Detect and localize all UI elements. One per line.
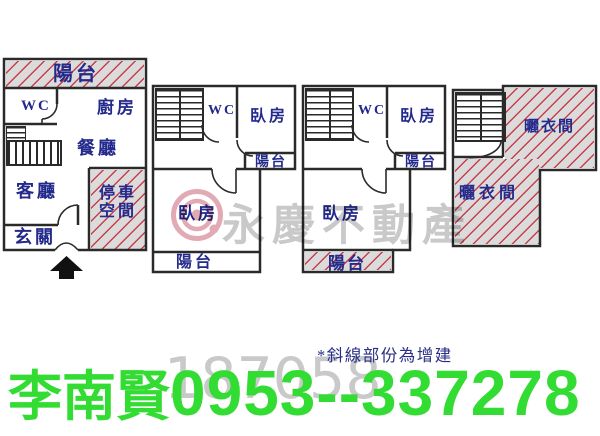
room-label-wc-p1: WC bbox=[21, 99, 51, 114]
phone-number: 0953--337278 bbox=[170, 356, 581, 430]
stairs-p4 bbox=[455, 92, 506, 142]
room-label-bedroom-p2: 臥房 bbox=[178, 205, 218, 222]
entrance-arrow-icon bbox=[50, 256, 83, 279]
stairs-p3 bbox=[305, 88, 354, 141]
floorplan-image: 陽台 WC 廚房 餐廳 客廳 停車 空間 玄關 WC 臥房 陽台 臥房 陽台 W… bbox=[0, 0, 600, 436]
room-label-balcony-side-p2: 陽台 bbox=[255, 156, 287, 170]
room-label-balcony-side-p3: 陽台 bbox=[405, 156, 437, 170]
room-label-drying-bottom-p4: 曬衣間 bbox=[459, 186, 519, 202]
room-label-wc-p2: WC bbox=[208, 104, 236, 118]
stairs-p1 bbox=[6, 140, 62, 166]
room-label-balcony-p1: 陽台 bbox=[53, 64, 99, 84]
room-label-parking-1: 停車 bbox=[99, 186, 137, 202]
room-label-kitchen-p1: 廚房 bbox=[97, 99, 137, 116]
stairs-p2 bbox=[155, 88, 204, 141]
room-label-bedroom-p3: 臥房 bbox=[322, 205, 362, 222]
room-label-wc-p3: WC bbox=[358, 104, 386, 118]
room-label-balcony-p2: 陽台 bbox=[176, 255, 214, 271]
room-label-balcony-p3: 陽台 bbox=[328, 255, 366, 272]
room-label-bedroom-top-p3: 臥房 bbox=[400, 109, 438, 125]
stairs-landing-p1 bbox=[6, 126, 26, 141]
room-label-bedroom-top-p2: 臥房 bbox=[250, 109, 288, 125]
room-label-foyer-p1: 玄關 bbox=[14, 228, 56, 246]
room-label-dining-p1: 餐廳 bbox=[77, 139, 119, 157]
room-label-parking-2: 空間 bbox=[99, 204, 137, 220]
agent-name: 李南賢 bbox=[8, 352, 170, 431]
room-label-living-p1: 客廳 bbox=[16, 182, 58, 200]
contact-line: 李南賢0953--337278 bbox=[8, 352, 581, 431]
hatch-note: *斜線部份為增建 bbox=[317, 342, 453, 366]
room-label-drying-top-p4: 曬衣間 bbox=[524, 120, 575, 135]
